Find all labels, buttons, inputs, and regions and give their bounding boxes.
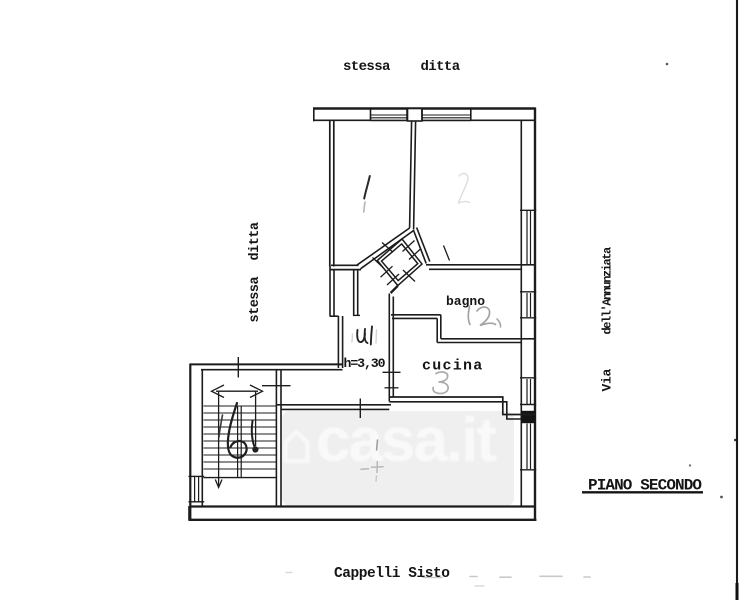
svg-text:casa.it: casa.it — [316, 406, 496, 475]
svg-text:ditta: ditta — [248, 222, 263, 260]
svg-text:stessa: stessa — [343, 59, 391, 75]
svg-text:stessa: stessa — [248, 276, 263, 322]
svg-text:bagno: bagno — [446, 294, 485, 309]
svg-text:Cappelli Sisto: Cappelli Sisto — [334, 566, 450, 582]
svg-text:ditta: ditta — [421, 59, 461, 75]
svg-text:h=3,30: h=3,30 — [344, 356, 386, 371]
svg-text:cucina: cucina — [422, 358, 484, 375]
svg-text:dell'Annunziata: dell'Annunziata — [601, 247, 615, 335]
svg-text:Via: Via — [600, 368, 615, 391]
